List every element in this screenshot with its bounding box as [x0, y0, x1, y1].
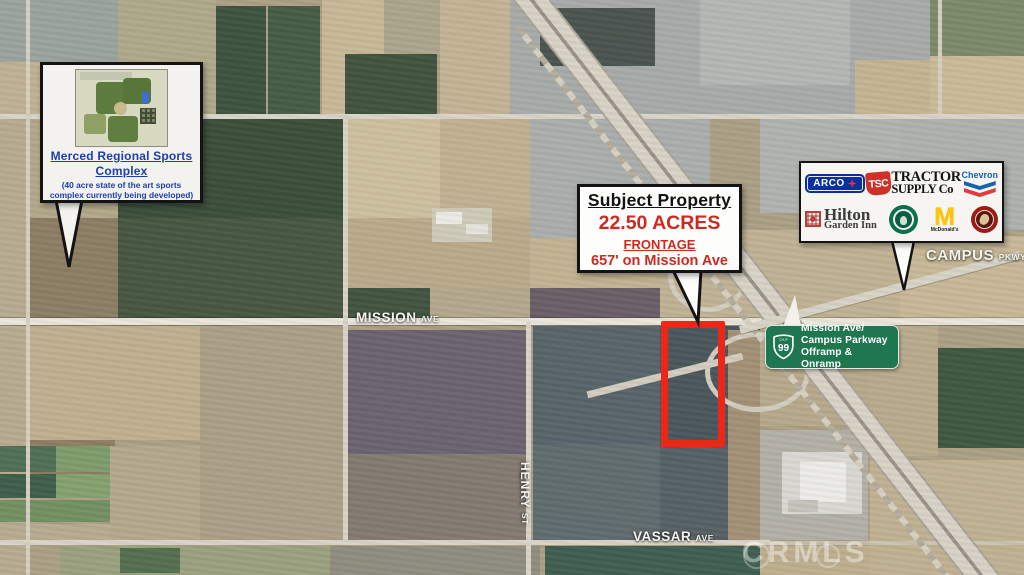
sports-complex-callout: Merced Regional Sports Complex (40 acre …: [40, 62, 203, 203]
subject-frontage-label: FRONTAGE: [580, 237, 739, 252]
map-field: [700, 0, 850, 85]
sign-line: Mission Ave/: [801, 323, 895, 335]
tsc-shield-logo: TSC: [865, 171, 892, 196]
tractor-supply-line2: SUPPLY Co: [891, 184, 960, 196]
plan-trellis: [140, 108, 156, 124]
road: [26, 0, 30, 575]
map-field: [545, 546, 760, 575]
sports-complex-site-plan: [75, 69, 168, 147]
road: [343, 114, 348, 544]
chevron-blue-chevron-icon: [964, 181, 996, 190]
shield-state-text: CALIF: [779, 337, 788, 341]
map-field: [0, 0, 118, 62]
chipotle-logo: [971, 206, 998, 233]
subject-property-callout: Subject Property 22.50 ACRES FRONTAGE 65…: [577, 184, 742, 273]
map-field: [110, 446, 200, 542]
hilton-crest-icon: [805, 211, 821, 227]
map-field: [345, 330, 531, 454]
subject-property-outline: [661, 321, 725, 447]
sign-line: Campus Parkway: [801, 335, 895, 347]
street-label-vassar-ave: VASSAR AVE: [633, 529, 714, 544]
road: [938, 0, 942, 116]
arco-spark-icon: [848, 179, 857, 188]
freeway-guide-sign: CALIF 99 Mission Ave/ Campus Parkway Off…: [765, 325, 899, 369]
street-type: PKWY: [999, 252, 1024, 262]
orchard-field: [938, 348, 1024, 448]
map-field: [930, 0, 1024, 56]
plan-pool: [142, 92, 149, 103]
map-field: [440, 118, 530, 218]
plan-plaza: [114, 102, 127, 115]
crmls-watermark: CRMLS: [742, 536, 869, 570]
industrial-building: [800, 462, 846, 502]
garden-inn-label: Garden Inn: [824, 222, 877, 231]
arco-label: ARCO: [813, 178, 844, 189]
map-field: [216, 6, 266, 118]
map-field: [56, 474, 110, 498]
street-name: CAMPUS: [926, 247, 994, 264]
map-field: [345, 118, 440, 218]
sign-line: Offramp & Onramp: [801, 347, 895, 371]
plan-field: [84, 114, 106, 134]
street-label-henry-st: HENRY ST: [518, 462, 532, 525]
nearby-brands-callout: ARCO TSC TRACTOR SUPPLY Co Chevron Hilto…: [799, 161, 1004, 243]
map-field: [345, 454, 531, 540]
map-field: [930, 56, 1024, 118]
industrial-building: [788, 500, 818, 512]
sports-callout-title: Merced Regional Sports: [43, 149, 200, 164]
map-field: [440, 0, 510, 118]
mcdonalds-logo: M McDonald's: [931, 207, 959, 232]
sports-callout-subtitle: complex currently being developed): [43, 190, 200, 200]
map-field: [30, 218, 118, 320]
plan-field: [108, 116, 138, 142]
map-field: [855, 60, 930, 118]
street-type: AVE: [421, 314, 439, 324]
subject-frontage-value: 657' on Mission Ave: [580, 253, 739, 269]
tractor-supply-logo: TRACTOR SUPPLY Co: [891, 171, 960, 196]
map-field: [120, 548, 180, 573]
map-field: [430, 288, 530, 320]
tsc-label: TSC: [868, 177, 888, 191]
map-field: [330, 546, 540, 575]
street-name: HENRY: [518, 462, 532, 509]
farm-building: [436, 212, 462, 224]
subject-title: Subject Property: [580, 190, 739, 211]
sports-callout-title: Complex: [43, 164, 200, 179]
map-field: [345, 54, 437, 118]
map-field: [200, 326, 345, 540]
street-type: AVE: [696, 533, 714, 543]
mcdonalds-label: McDonald's: [931, 228, 959, 232]
farm-building: [466, 224, 488, 234]
aerial-map: CALIF 99 Mission Ave/ Campus Parkway Off…: [0, 0, 1024, 575]
golden-arches-icon: M: [934, 207, 955, 227]
starbucks-logo: [889, 205, 918, 234]
map-field: [0, 500, 110, 522]
sports-callout-subtitle: (40 acre state of the art sports: [43, 180, 200, 190]
road-henry-st: [526, 322, 531, 575]
map-field: [533, 444, 660, 540]
chevron-logo: Chevron: [961, 170, 998, 197]
map-field: [268, 6, 320, 118]
arco-logo: ARCO: [805, 174, 865, 193]
map-field: [30, 326, 200, 440]
orchard-field: [118, 218, 345, 322]
street-name: VASSAR: [633, 529, 691, 544]
street-label-mission-ave: MISSION AVE: [356, 310, 439, 325]
chevron-label: Chevron: [961, 170, 998, 180]
hilton-garden-inn-logo: Hilton Garden Inn: [805, 208, 877, 231]
map-field: [60, 546, 330, 575]
map-field: [56, 446, 110, 472]
street-name: MISSION: [356, 310, 417, 325]
street-label-campus-pkwy: CAMPUS PKWY: [926, 247, 1024, 264]
street-type: ST: [520, 513, 530, 525]
ca-99-shield-icon: CALIF 99: [770, 334, 797, 360]
subject-acreage: 22.50 ACRES: [580, 212, 739, 235]
shield-route-number: 99: [778, 343, 790, 354]
